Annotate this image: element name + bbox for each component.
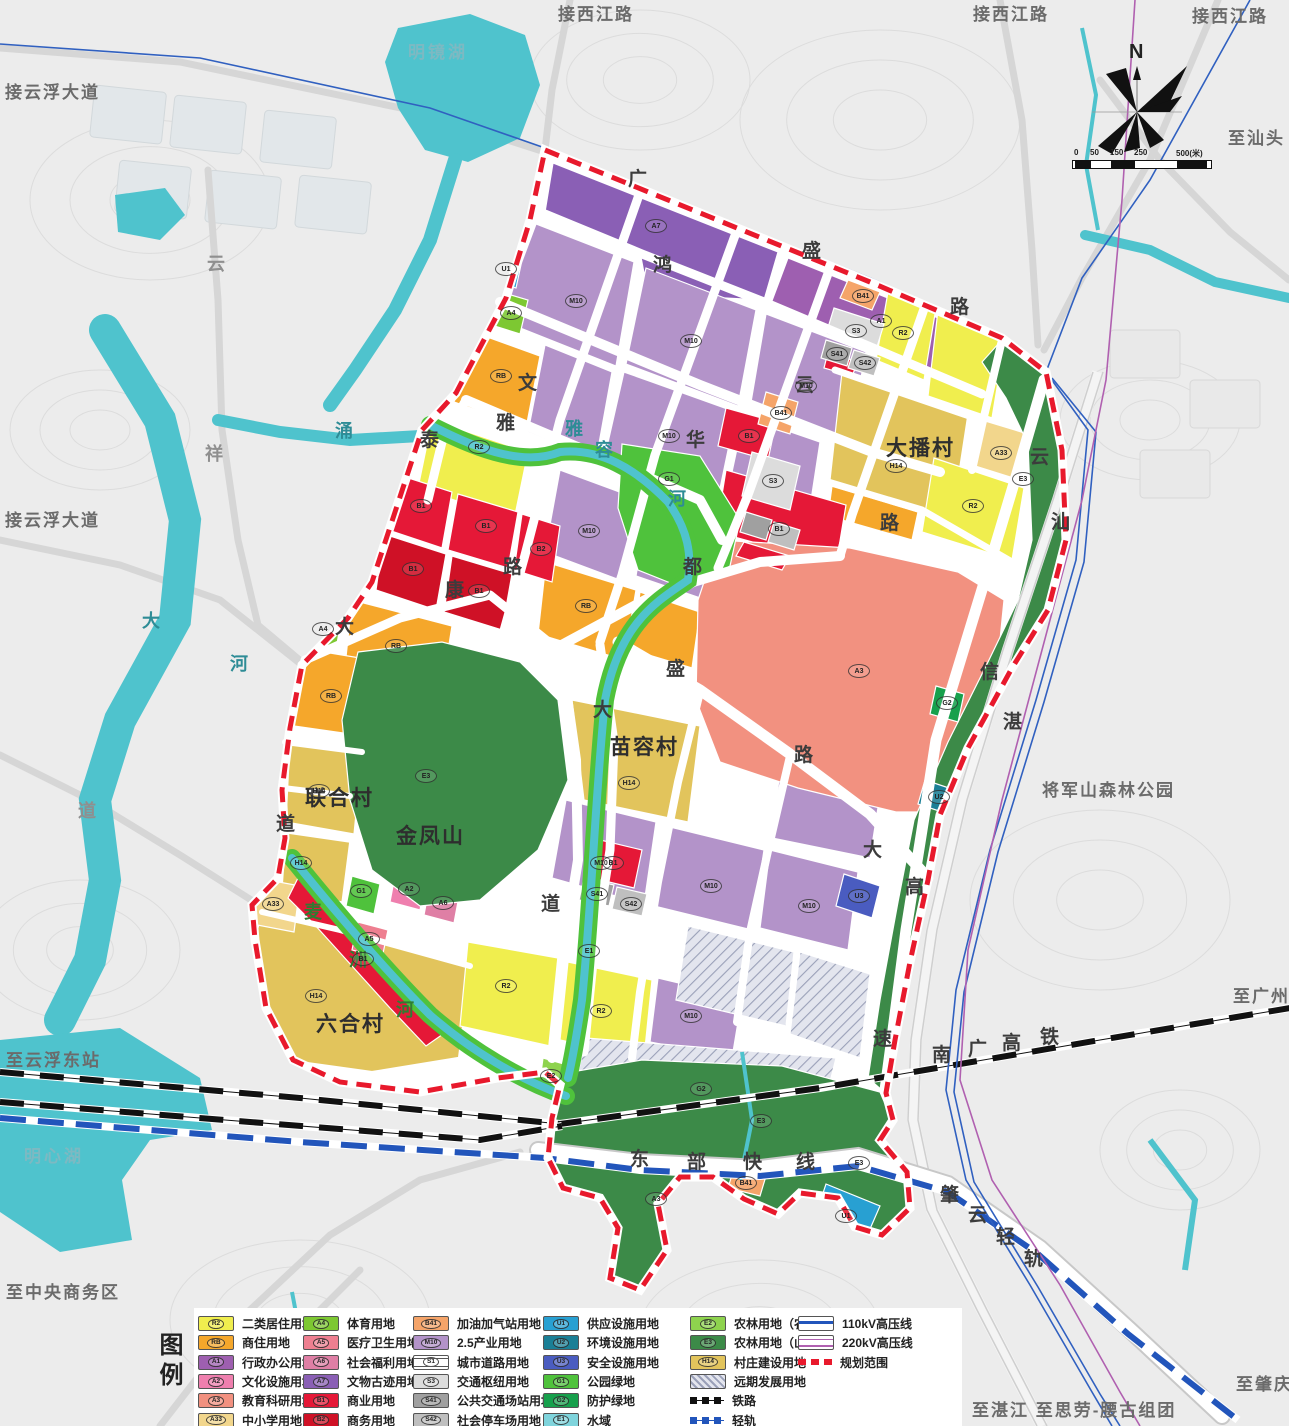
legend-item: A33中小学用地 xyxy=(198,1410,314,1426)
scale-bar-segments xyxy=(1072,160,1212,169)
legend-item: 110kV高压线 xyxy=(798,1314,913,1333)
legend-item-label: 铁路 xyxy=(732,1392,756,1409)
legend-item: A2文化设施用地 xyxy=(198,1372,314,1391)
legend-panel: R2二类居住用地RB商住用地A1行政办公用地A2文化设施用地A3教育科研用地A3… xyxy=(194,1308,962,1426)
legend-item: S1城市道路用地 xyxy=(413,1353,553,1372)
legend-item-label: 商务用地 xyxy=(347,1412,395,1426)
legend-item-label: 供应设施用地 xyxy=(587,1315,659,1332)
legend-item: M102.5产业用地 xyxy=(413,1333,553,1352)
legend-item-label: 220kV高压线 xyxy=(842,1334,913,1351)
legend-item: 规划范围 xyxy=(798,1353,913,1372)
legend-item: B1商业用地 xyxy=(303,1391,419,1410)
legend-item-label: 2.5产业用地 xyxy=(457,1334,522,1351)
legend-item: A3教育科研用地 xyxy=(198,1391,314,1410)
legend-item: B41加油加气站用地 xyxy=(413,1314,553,1333)
legend-item-label: 安全设施用地 xyxy=(587,1354,659,1371)
legend-item-label: 防护绿地 xyxy=(587,1392,635,1409)
legend-item: S41公共交通场站用地 xyxy=(413,1391,553,1410)
scale-tick: 50 xyxy=(1090,148,1099,157)
legend-item-label: 公共交通场站用地 xyxy=(457,1392,553,1409)
legend-item-label: 社会停车场用地 xyxy=(457,1412,541,1426)
legend-item: R2二类居住用地 xyxy=(198,1314,314,1333)
legend-item: A7文物古迹用地 xyxy=(303,1372,419,1391)
map-canvas: N xyxy=(0,0,1289,1426)
legend-item-label: 110kV高压线 xyxy=(842,1315,912,1332)
legend-item: U3安全设施用地 xyxy=(543,1353,659,1372)
legend-item: S42社会停车场用地 xyxy=(413,1410,553,1426)
legend-item-label: 城市道路用地 xyxy=(457,1354,529,1371)
legend-item-label: 体育用地 xyxy=(347,1315,395,1332)
legend-item-label: 医疗卫生用地 xyxy=(347,1334,419,1351)
scale-segment xyxy=(1075,161,1091,168)
scale-bar: 050150250500(米) xyxy=(1072,148,1212,174)
legend-item: A4体育用地 xyxy=(303,1314,419,1333)
legend-item-label: 公园绿地 xyxy=(587,1373,635,1390)
scale-tick: 500(米) xyxy=(1176,148,1203,159)
legend-column: R2二类居住用地RB商住用地A1行政办公用地A2文化设施用地A3教育科研用地A3… xyxy=(198,1314,314,1426)
legend-item: E1水域 xyxy=(543,1410,659,1426)
legend-item-label: 远期发展用地 xyxy=(734,1373,806,1390)
legend-item: 轻轨 xyxy=(690,1410,830,1426)
legend-item-label: 规划范围 xyxy=(840,1354,888,1371)
legend-column: B41加油加气站用地M102.5产业用地S1城市道路用地S3交通枢纽用地S41公… xyxy=(413,1314,553,1426)
legend-item-label: 社会福利用地 xyxy=(347,1354,419,1371)
legend-item: 远期发展用地 xyxy=(690,1372,830,1391)
legend-item: 220kV高压线 xyxy=(798,1333,913,1352)
legend-item-label: 中小学用地 xyxy=(242,1412,302,1426)
legend-item: S3交通枢纽用地 xyxy=(413,1372,553,1391)
scale-tick: 0 xyxy=(1074,148,1078,157)
legend-item-label: 水域 xyxy=(587,1412,611,1426)
legend-item-label: 商业用地 xyxy=(347,1392,395,1409)
legend-item-label: 交通枢纽用地 xyxy=(457,1373,529,1390)
legend-item: RB商住用地 xyxy=(198,1333,314,1352)
legend-item: A5医疗卫生用地 xyxy=(303,1333,419,1352)
legend-item: A6社会福利用地 xyxy=(303,1353,419,1372)
legend-item-label: 文物古迹用地 xyxy=(347,1373,419,1390)
north-label: N xyxy=(1129,41,1143,63)
scale-bar-ticks: 050150250500(米) xyxy=(1072,148,1212,158)
legend-item-label: 村庄建设用地 xyxy=(734,1354,806,1371)
legend-item-label: 商住用地 xyxy=(242,1334,290,1351)
legend-item-label: 轻轨 xyxy=(732,1412,756,1426)
legend-item: U1供应设施用地 xyxy=(543,1314,659,1333)
legend-item: A1行政办公用地 xyxy=(198,1353,314,1372)
legend-item: G2防护绿地 xyxy=(543,1391,659,1410)
scale-segment xyxy=(1177,161,1207,168)
legend-item-label: 环境设施用地 xyxy=(587,1334,659,1351)
scale-segment xyxy=(1111,161,1135,168)
legend-item-label: 加油加气站用地 xyxy=(457,1315,541,1332)
scale-segment xyxy=(1135,161,1177,168)
scale-tick: 150 xyxy=(1110,148,1123,157)
scale-tick: 250 xyxy=(1134,148,1147,157)
legend-item: G1公园绿地 xyxy=(543,1372,659,1391)
legend-column: 110kV高压线220kV高压线规划范围 xyxy=(798,1314,913,1372)
legend-item: B2商务用地 xyxy=(303,1410,419,1426)
scale-segment xyxy=(1091,161,1111,168)
legend-item: U2环境设施用地 xyxy=(543,1333,659,1352)
legend-item: 铁路 xyxy=(690,1391,830,1410)
legend-column: U1供应设施用地U2环境设施用地U3安全设施用地G1公园绿地G2防护绿地E1水域 xyxy=(543,1314,659,1426)
planning-map-page: N 接西江路接西江路接西江路接云浮大道接云浮大道至汕头至广州至肇庆至湛江 至思劳… xyxy=(0,0,1289,1426)
legend-column: A4体育用地A5医疗卫生用地A6社会福利用地A7文物古迹用地B1商业用地B2商务… xyxy=(303,1314,419,1426)
